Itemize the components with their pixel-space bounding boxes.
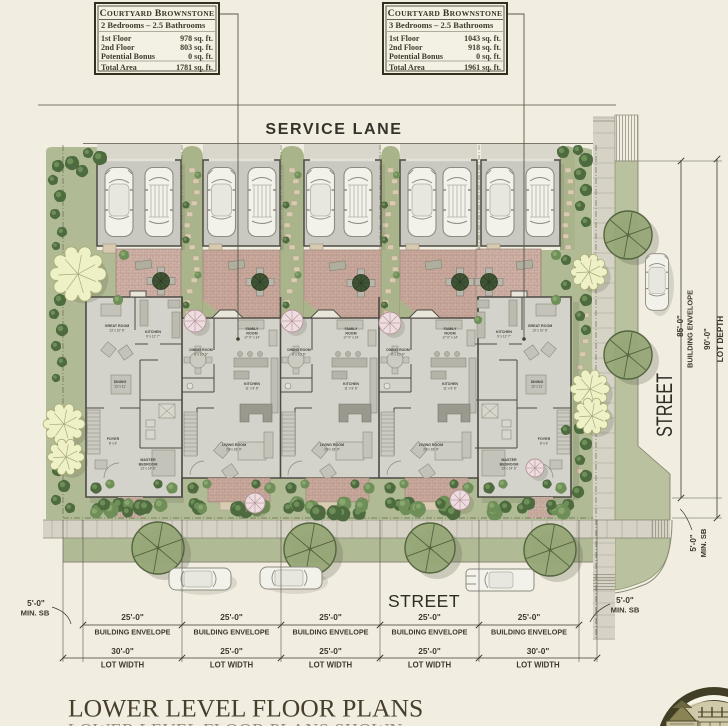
svg-text:BUILDING ENVELOPE: BUILDING ENVELOPE	[293, 628, 369, 637]
svg-text:30'-0": 30'-0"	[527, 646, 550, 656]
svg-text:LOT WIDTH: LOT WIDTH	[408, 661, 452, 670]
svg-text:BUILDING ENVELOPE: BUILDING ENVELOPE	[686, 290, 695, 368]
svg-text:MIN. SB: MIN. SB	[21, 609, 50, 618]
svg-text:KITCHEN: KITCHEN	[145, 330, 161, 334]
svg-text:13' x 14' 6": 13' x 14' 6"	[140, 467, 155, 471]
svg-text:Potential Bonus: Potential Bonus	[389, 52, 443, 61]
svg-text:8' x 6': 8' x 6'	[109, 442, 118, 446]
svg-text:803 sq. ft.: 803 sq. ft.	[180, 43, 213, 52]
svg-text:LOT DEPTH: LOT DEPTH	[716, 316, 725, 362]
svg-text:918 sq. ft.: 918 sq. ft.	[468, 43, 501, 52]
svg-text:BUILDING ENVELOPE: BUILDING ENVELOPE	[194, 628, 270, 637]
svg-text:5'-0": 5'-0"	[616, 596, 634, 605]
svg-text:SERVICE LANE: SERVICE LANE	[265, 121, 402, 138]
svg-text:1043 sq. ft.: 1043 sq. ft.	[464, 34, 501, 43]
svg-text:DINING: DINING	[531, 380, 544, 384]
svg-text:LIVING ROOM: LIVING ROOM	[419, 443, 443, 447]
svg-text:Potential Bonus: Potential Bonus	[101, 52, 155, 61]
svg-text:COURTYARD BROWNSTONE: COURTYARD BROWNSTONE	[388, 8, 503, 19]
svg-text:25'-0": 25'-0"	[418, 612, 441, 622]
svg-text:2nd Floor: 2nd Floor	[389, 43, 423, 52]
svg-text:11' x 9' 6": 11' x 9' 6"	[344, 387, 357, 391]
svg-text:STREET: STREET	[652, 373, 677, 437]
svg-text:FAMILY: FAMILY	[444, 327, 457, 331]
svg-text:11' x 9' 6": 11' x 9' 6"	[443, 387, 456, 391]
svg-text:GREAT ROOM: GREAT ROOM	[105, 324, 130, 328]
svg-text:8' x 6': 8' x 6'	[540, 442, 549, 446]
svg-text:5'-0": 5'-0"	[689, 534, 698, 551]
svg-text:25'-0": 25'-0"	[319, 612, 342, 622]
svg-text:BUILDING ENVELOPE: BUILDING ENVELOPE	[392, 628, 468, 637]
svg-text:COURTYARD BROWNSTONE: COURTYARD BROWNSTONE	[100, 8, 215, 19]
svg-text:LOT WIDTH: LOT WIDTH	[101, 661, 145, 670]
svg-text:978 sq. ft.: 978 sq. ft.	[180, 34, 213, 43]
svg-text:Total Area: Total Area	[101, 63, 137, 72]
svg-text:LOT WIDTH: LOT WIDTH	[309, 661, 353, 670]
svg-text:13' x 11': 13' x 11'	[531, 385, 543, 389]
svg-text:MIN. SB: MIN. SB	[611, 606, 640, 615]
svg-text:13' x 14' 6": 13' x 14' 6"	[501, 467, 516, 471]
svg-text:25'-0": 25'-0"	[319, 646, 342, 656]
svg-text:MIN. SB: MIN. SB	[699, 528, 708, 557]
svg-text:GREAT ROOM: GREAT ROOM	[528, 324, 553, 328]
svg-text:25'-0": 25'-0"	[418, 646, 441, 656]
svg-text:1st Floor: 1st Floor	[389, 34, 420, 43]
svg-text:13' x 10' 6": 13' x 10' 6"	[109, 329, 124, 333]
svg-text:BUILDING ENVELOPE: BUILDING ENVELOPE	[95, 628, 171, 637]
svg-text:9' x 12' 7": 9' x 12' 7"	[497, 335, 511, 339]
svg-text:17' 0" x 14': 17' 0" x 14'	[244, 336, 260, 340]
svg-text:DINING ROOM: DINING ROOM	[386, 348, 410, 352]
svg-text:KITCHEN: KITCHEN	[244, 382, 260, 386]
svg-text:KITCHEN: KITCHEN	[442, 382, 458, 386]
svg-text:0 sq. ft.: 0 sq. ft.	[476, 52, 501, 61]
svg-text:25'-0": 25'-0"	[121, 612, 144, 622]
svg-text:FAMILY: FAMILY	[345, 327, 358, 331]
svg-text:2 Bedrooms – 2.5 Bathrooms: 2 Bedrooms – 2.5 Bathrooms	[101, 20, 206, 30]
svg-text:1961 sq. ft.: 1961 sq. ft.	[464, 63, 501, 72]
svg-text:LOT WIDTH: LOT WIDTH	[210, 661, 254, 670]
svg-text:20' x 18' 0": 20' x 18' 0"	[423, 448, 438, 452]
svg-text:20' x 18' 0": 20' x 18' 0"	[226, 448, 241, 452]
svg-text:8' x 10' 6": 8' x 10' 6"	[391, 353, 405, 357]
svg-text:MASTER: MASTER	[140, 458, 156, 462]
svg-text:LOWER LEVEL FLOOR PLANS: LOWER LEVEL FLOOR PLANS	[68, 694, 423, 723]
svg-text:2nd Floor: 2nd Floor	[101, 43, 135, 52]
svg-text:KITCHEN: KITCHEN	[496, 330, 512, 334]
svg-text:KITCHEN: KITCHEN	[343, 382, 359, 386]
svg-text:13' x 11': 13' x 11'	[114, 385, 126, 389]
svg-text:25'-0": 25'-0"	[220, 646, 243, 656]
svg-text:0 sq. ft.: 0 sq. ft.	[188, 52, 213, 61]
svg-text:17' 0" x 14': 17' 0" x 14'	[442, 336, 458, 340]
svg-text:Total Area: Total Area	[389, 63, 425, 72]
svg-text:FAMILY: FAMILY	[246, 327, 259, 331]
svg-text:11' x 9' 6": 11' x 9' 6"	[245, 387, 258, 391]
svg-text:LOWER LEVEL FLOOR PLANS SHOWN: LOWER LEVEL FLOOR PLANS SHOWN	[68, 720, 403, 726]
svg-text:STREET: STREET	[388, 591, 460, 611]
svg-text:90'-0": 90'-0"	[703, 328, 712, 350]
svg-text:LIVING ROOM: LIVING ROOM	[222, 443, 246, 447]
svg-text:25'-0": 25'-0"	[518, 612, 541, 622]
svg-text:FOYER: FOYER	[538, 437, 551, 441]
svg-text:17' 0" x 14': 17' 0" x 14'	[343, 336, 359, 340]
svg-text:1st Floor: 1st Floor	[101, 34, 132, 43]
svg-text:8' x 10' 6": 8' x 10' 6"	[292, 353, 306, 357]
svg-text:9' x 12' 7": 9' x 12' 7"	[146, 335, 160, 339]
svg-text:FOYER: FOYER	[107, 437, 120, 441]
svg-text:5'-0": 5'-0"	[27, 599, 45, 608]
svg-text:30'-0": 30'-0"	[111, 646, 134, 656]
svg-text:1781 sq. ft.: 1781 sq. ft.	[176, 63, 213, 72]
svg-text:MASTER: MASTER	[501, 458, 517, 462]
svg-text:13' x 10' 6": 13' x 10' 6"	[532, 329, 547, 333]
svg-text:DINING ROOM: DINING ROOM	[189, 348, 213, 352]
svg-text:25'-0": 25'-0"	[220, 612, 243, 622]
svg-text:BUILDING ENVELOPE: BUILDING ENVELOPE	[491, 628, 567, 637]
svg-text:DINING ROOM: DINING ROOM	[287, 348, 311, 352]
svg-text:DINING: DINING	[114, 380, 127, 384]
svg-text:3 Bedrooms – 2.5 Bathrooms: 3 Bedrooms – 2.5 Bathrooms	[389, 20, 494, 30]
svg-text:8' x 10' 6": 8' x 10' 6"	[194, 353, 208, 357]
svg-text:85'-0": 85'-0"	[676, 315, 685, 337]
svg-text:LIVING ROOM: LIVING ROOM	[320, 443, 344, 447]
svg-text:LOT WIDTH: LOT WIDTH	[516, 661, 560, 670]
svg-text:20' x 18' 0": 20' x 18' 0"	[324, 448, 339, 452]
